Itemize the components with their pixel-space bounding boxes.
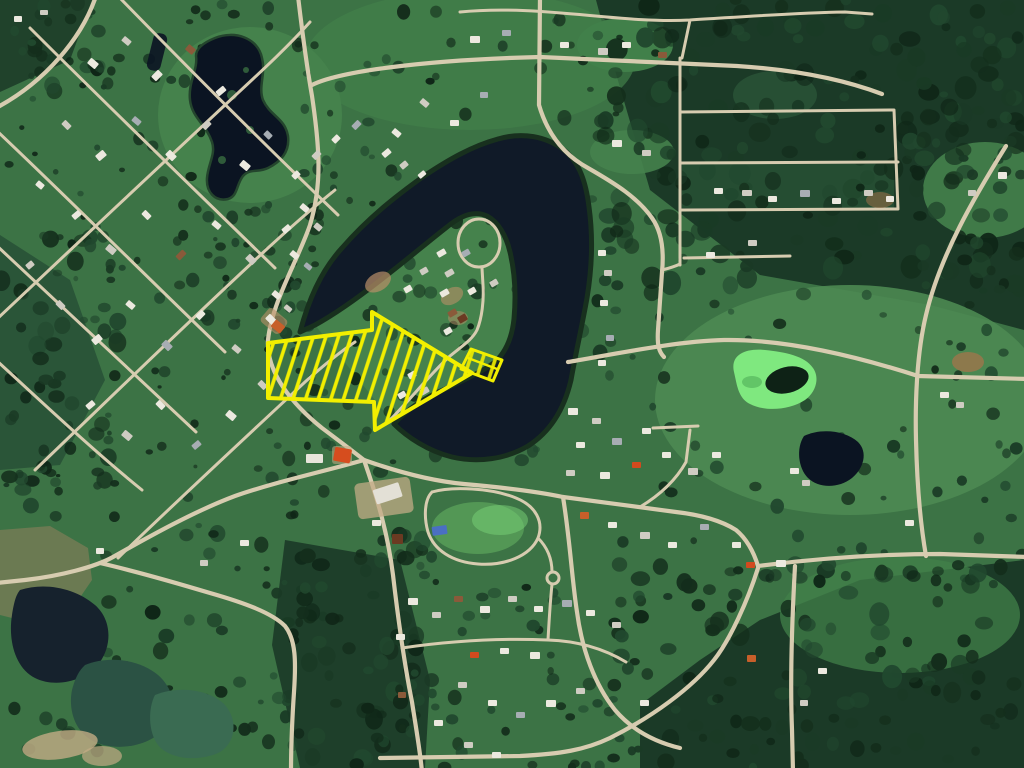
tree-clump — [91, 25, 106, 38]
tree-clump — [363, 667, 374, 675]
tree-clump — [1002, 448, 1011, 458]
building — [372, 520, 381, 526]
tree-clump — [254, 537, 268, 553]
building — [576, 688, 585, 694]
tree-clump — [65, 14, 77, 25]
building — [598, 48, 608, 55]
tree-clump — [644, 284, 660, 301]
tree-clump — [944, 583, 953, 591]
building — [612, 140, 622, 147]
tree-clump — [622, 662, 634, 675]
tree-clump — [994, 285, 1006, 293]
tree-clump — [244, 209, 252, 216]
tree-clump — [932, 138, 940, 147]
building — [956, 402, 964, 408]
tree-clump — [119, 265, 126, 271]
tree-clump — [998, 349, 1008, 357]
tree-clump — [660, 643, 676, 655]
tree-clump — [728, 589, 742, 601]
tree-clump — [202, 211, 214, 222]
tree-clump — [724, 188, 739, 201]
tree-clump — [101, 84, 107, 89]
tree-clump — [737, 267, 757, 288]
building — [712, 452, 721, 458]
tree-clump — [14, 484, 31, 496]
tree-clump — [194, 205, 202, 213]
tree-clump — [932, 487, 942, 498]
building — [658, 52, 667, 58]
tree-clump — [613, 112, 620, 117]
tree-clump — [701, 147, 722, 162]
tree-clump — [967, 169, 978, 180]
tree-clump — [797, 685, 811, 700]
tree-clump — [426, 78, 435, 85]
tree-clump — [413, 284, 425, 298]
tree-clump — [32, 352, 49, 365]
tree-clump — [615, 630, 629, 642]
tree-clump — [627, 119, 648, 143]
tree-clump — [847, 198, 858, 207]
tree-clump — [911, 166, 925, 180]
tree-clump — [362, 118, 374, 127]
tree-clump — [44, 77, 60, 94]
tree-clump — [458, 627, 467, 636]
tree-clump — [463, 611, 475, 621]
tree-clump — [969, 252, 991, 278]
tree-clump — [633, 591, 645, 603]
tree-clump — [837, 696, 855, 710]
tree-clump — [993, 181, 1007, 194]
tree-clump — [174, 281, 185, 290]
tree-clump — [54, 487, 63, 496]
building — [470, 652, 479, 658]
tree-clump — [1001, 89, 1016, 106]
tree-clump — [103, 436, 113, 445]
building — [562, 600, 572, 607]
tree-clump — [604, 246, 616, 255]
brown-building — [392, 534, 403, 544]
tree-clump — [448, 690, 462, 705]
tree-clump — [325, 670, 334, 681]
tree-clump — [826, 623, 837, 636]
tree-clump — [820, 113, 835, 129]
tree-clump — [710, 612, 729, 631]
tree-clump — [749, 482, 761, 492]
tree-clump — [850, 740, 865, 757]
tree-clump — [228, 10, 240, 19]
building — [450, 120, 459, 126]
tree-clump — [845, 718, 858, 729]
tree-clump — [414, 694, 425, 706]
tree-clump — [608, 679, 622, 691]
tree-clump — [712, 694, 723, 703]
tree-clump — [354, 553, 367, 565]
tree-clump — [928, 202, 946, 219]
building — [398, 692, 406, 698]
tree-clump — [37, 322, 54, 341]
tree-clump — [305, 748, 321, 766]
tree-clump — [158, 629, 174, 643]
tree-clump — [394, 172, 402, 181]
tree-clump — [270, 672, 278, 679]
tree-clump — [258, 700, 264, 705]
tree-clump — [731, 25, 744, 36]
tree-clump — [865, 652, 879, 664]
tree-clump — [325, 613, 339, 625]
building — [612, 438, 622, 445]
tree-clump — [153, 642, 168, 659]
tree-clump — [938, 11, 950, 24]
tree-clump — [65, 396, 80, 410]
tree-clump — [665, 223, 680, 238]
tree-clump — [424, 673, 439, 687]
building — [864, 190, 873, 196]
building — [560, 42, 569, 48]
tree-clump — [981, 497, 988, 503]
tree-clump — [827, 737, 839, 751]
tree-clump — [430, 6, 442, 18]
tree-clump — [290, 510, 298, 518]
tree-clump — [373, 654, 388, 669]
tree-clump — [844, 14, 864, 29]
tree-clump — [363, 61, 371, 68]
tree-clump — [527, 620, 540, 632]
tree-clump — [729, 162, 751, 185]
tree-clump — [829, 714, 840, 723]
tree-clump — [119, 168, 125, 173]
building — [746, 562, 755, 568]
tree-clump — [696, 267, 706, 275]
tree-clump — [607, 86, 626, 105]
tree-clump — [973, 26, 985, 38]
tree-clump — [56, 718, 68, 730]
tree-clump — [377, 711, 387, 719]
tree-clump — [371, 733, 384, 743]
tree-clump — [994, 559, 1008, 575]
tree-clump — [367, 591, 379, 599]
tree-clump — [907, 733, 925, 750]
tree-clump — [920, 109, 936, 126]
tree-clump — [20, 391, 31, 403]
tree-clump — [195, 523, 202, 528]
tree-clump — [424, 286, 437, 298]
tree-clump — [881, 496, 887, 501]
tree-clump — [19, 125, 24, 130]
tree-clump — [193, 465, 197, 469]
tree-clump — [10, 26, 19, 36]
tree-clump — [631, 571, 650, 586]
building — [688, 468, 698, 475]
tree-clump — [872, 35, 889, 52]
tree-clump — [957, 255, 972, 266]
building — [240, 540, 249, 546]
building — [748, 240, 757, 246]
tree-clump — [658, 209, 679, 224]
tree-clump — [446, 714, 458, 724]
tree-clump — [972, 106, 985, 115]
tree-clump — [897, 59, 917, 81]
tree-clump — [813, 575, 825, 588]
tree-clump — [578, 705, 589, 712]
building — [516, 712, 525, 718]
building — [732, 542, 741, 548]
tree-clump — [294, 728, 304, 739]
tree-clump — [476, 593, 488, 602]
tree-clump — [793, 34, 804, 43]
tree-clump — [611, 280, 623, 290]
tree-clump — [145, 605, 161, 620]
tree-clump — [922, 281, 931, 289]
tree-clump — [30, 96, 37, 102]
tree-clump — [987, 266, 996, 276]
building — [434, 720, 443, 726]
tree-clump — [856, 542, 867, 554]
building — [96, 548, 104, 554]
building — [508, 596, 517, 602]
tree-clump — [767, 113, 779, 125]
tree-clump — [1012, 31, 1024, 43]
tree-clump — [841, 571, 851, 581]
building — [668, 542, 677, 548]
tree-clump — [296, 607, 309, 620]
tree-clump — [615, 597, 626, 608]
building — [642, 428, 651, 434]
tree-clump — [914, 151, 934, 167]
tree-clump — [970, 690, 980, 700]
tree-clump — [301, 104, 310, 114]
tree-clump — [791, 235, 804, 245]
tree-clump — [107, 431, 112, 436]
building — [40, 10, 48, 15]
tree-clump — [322, 155, 332, 165]
tree-clump — [714, 21, 728, 37]
tree-clump — [874, 567, 893, 583]
building — [622, 42, 631, 48]
tree-clump — [987, 119, 997, 129]
tree-clump — [16, 323, 26, 333]
building — [480, 92, 488, 98]
tree-clump — [39, 445, 50, 457]
tree-clump — [208, 530, 219, 538]
tree-clump — [346, 197, 353, 204]
building — [576, 442, 585, 448]
tree-clump — [27, 39, 36, 46]
tree-clump — [300, 582, 311, 593]
tree-clump — [191, 5, 201, 14]
tree-clump — [916, 244, 931, 260]
tree-clump — [597, 127, 615, 145]
tree-clump — [236, 319, 241, 323]
tree-clump — [983, 46, 1002, 64]
tree-clump — [862, 290, 872, 300]
tree-clump — [369, 201, 376, 207]
tree-clump — [966, 650, 979, 664]
tree-clump — [957, 476, 967, 486]
building — [432, 612, 441, 618]
tree-clump — [126, 586, 133, 593]
tree-clump — [940, 91, 949, 97]
building — [606, 335, 614, 341]
tree-clump — [728, 309, 734, 315]
white-building — [306, 454, 323, 463]
tree-clump — [975, 617, 993, 630]
tree-clump — [592, 699, 603, 708]
tree-clump — [329, 420, 340, 429]
tree-clump — [765, 172, 781, 190]
tree-clump — [942, 755, 954, 763]
tree-clump — [874, 163, 888, 176]
tree-clump — [907, 570, 921, 582]
tree-clump — [459, 108, 471, 121]
tree-clump — [1010, 442, 1023, 454]
building — [800, 700, 808, 706]
tree-clump — [433, 579, 439, 585]
tree-clump — [663, 593, 672, 600]
tree-clump — [784, 18, 801, 34]
tree-clump — [179, 74, 191, 88]
building — [998, 172, 1007, 179]
building — [500, 648, 509, 654]
tree-clump — [261, 204, 270, 213]
tree-clump — [266, 428, 273, 434]
tree-clump — [964, 301, 974, 309]
tree-clump — [931, 575, 942, 587]
tree-clump — [755, 196, 768, 209]
tree-clump — [18, 47, 26, 56]
tree-clump — [295, 618, 303, 627]
tree-clump — [837, 546, 846, 554]
tree-clump — [648, 123, 670, 144]
tree-clump — [749, 123, 771, 142]
tree-clump — [565, 713, 575, 720]
tree-clump — [971, 747, 980, 756]
tree-clump — [213, 237, 217, 241]
building — [14, 16, 22, 22]
building — [534, 606, 543, 612]
tree-clump — [361, 703, 374, 714]
tree-clump — [217, 0, 228, 9]
building — [396, 634, 405, 640]
tree-clump — [594, 114, 608, 127]
building — [642, 150, 651, 156]
tree-clump — [44, 17, 52, 26]
tree-clump — [709, 100, 728, 116]
tree-clump — [942, 23, 951, 31]
building — [600, 300, 608, 306]
tree-clump — [759, 717, 771, 731]
tree-clump — [774, 687, 791, 700]
building — [464, 742, 473, 748]
tree-clump — [185, 172, 196, 181]
tree-clump — [282, 451, 295, 466]
building — [454, 596, 463, 602]
tree-clump — [392, 291, 406, 303]
tree-clump — [825, 237, 843, 250]
tree-clump — [946, 340, 953, 345]
tree-clump — [681, 193, 692, 206]
tree-clump — [691, 222, 713, 241]
tree-clump — [692, 599, 706, 611]
tree-clump — [703, 584, 716, 595]
tree-clump — [677, 573, 693, 591]
tree-clump — [879, 312, 887, 318]
tree-clump — [318, 647, 336, 666]
tree-clump — [179, 529, 193, 541]
tree-clump — [737, 142, 748, 154]
tree-clump — [970, 237, 983, 250]
tree-clump — [272, 692, 286, 704]
tree-clump — [775, 0, 788, 14]
tree-clump — [77, 191, 83, 197]
tree-clump — [61, 0, 71, 9]
tree-clump — [931, 685, 941, 696]
tree-clump — [887, 440, 900, 453]
tree-clump — [617, 536, 628, 548]
tree-clump — [875, 180, 889, 191]
building — [470, 36, 480, 43]
tree-clump — [897, 689, 907, 701]
tree-clump — [53, 371, 66, 381]
tree-clump — [299, 169, 310, 177]
building — [612, 622, 621, 628]
tree-clump — [382, 54, 391, 64]
tree-clump — [109, 313, 126, 330]
tree-clump — [23, 498, 39, 514]
tree-clump — [770, 499, 784, 514]
tree-clump — [927, 660, 942, 672]
tree-clump — [184, 614, 195, 625]
building — [568, 408, 578, 415]
tree-clump — [547, 673, 560, 685]
tree-clump — [110, 480, 119, 487]
tree-clump — [254, 465, 263, 472]
building — [700, 524, 709, 530]
tree-clump — [733, 4, 750, 24]
tree-clump — [890, 43, 903, 56]
tree-clump — [109, 370, 120, 381]
tree-clump — [431, 704, 440, 711]
building — [818, 668, 827, 674]
tree-clump — [665, 29, 679, 43]
tree-clump — [262, 581, 270, 588]
tree-clump — [28, 73, 34, 79]
tree-clump — [649, 403, 656, 411]
tree-clump — [709, 300, 719, 309]
tree-clump — [515, 606, 524, 613]
tree-clump — [215, 686, 228, 698]
tree-clump — [882, 665, 902, 688]
tree-clump — [981, 324, 992, 336]
tree-clump — [67, 252, 84, 271]
tree-clump — [989, 580, 998, 588]
tree-clump — [916, 77, 931, 90]
tree-clump — [943, 682, 961, 703]
tree-clump — [335, 81, 346, 93]
tree-clump — [56, 474, 60, 477]
tree-clump — [399, 724, 406, 732]
tree-clump — [880, 228, 892, 237]
tree-clump — [33, 301, 49, 315]
tree-clump — [299, 548, 315, 563]
tree-clump — [806, 20, 825, 37]
tree-clump — [916, 132, 931, 148]
tree-clump — [803, 212, 813, 219]
tree-clump — [782, 146, 798, 158]
tree-clump — [687, 720, 703, 732]
tree-clump — [668, 170, 687, 186]
tree-clump — [972, 208, 990, 222]
tree-clump — [27, 47, 42, 58]
